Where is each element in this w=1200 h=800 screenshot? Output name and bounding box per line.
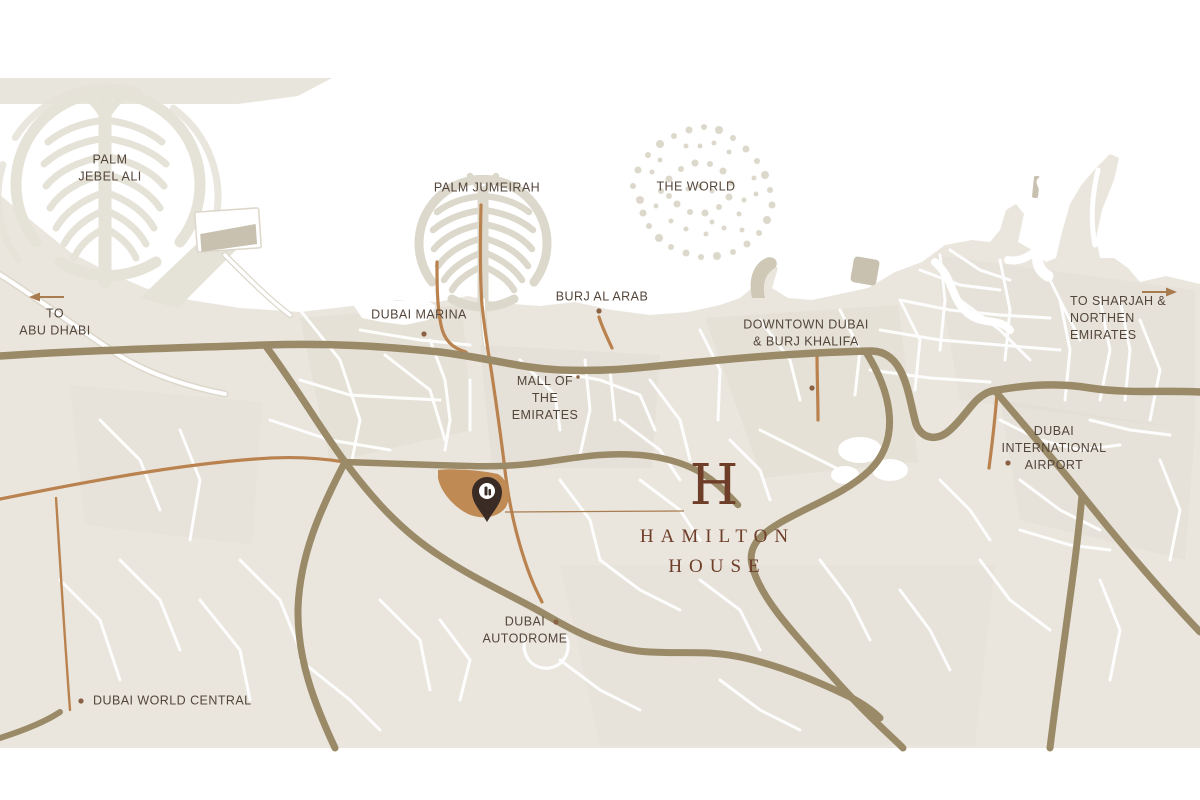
label-dubai-autodrome: DUBAI AUTODROME (482, 613, 567, 647)
world-central-dot (78, 698, 83, 703)
coastal-block (850, 256, 880, 286)
label-downtown-dubai: DOWNTOWN DUBAI & BURJ KHALIFA (743, 316, 869, 350)
map-canvas: PALM JEBEL ALI TO ABU DHABI PALM JUMEIRA… (0, 0, 1200, 800)
label-to-sharjah: TO SHARJAH & NORTHEN EMIRATES (1070, 293, 1200, 343)
label-dubai-world-central: DUBAI WORLD CENTRAL (93, 693, 252, 710)
burj-al-arab-dot (596, 308, 601, 313)
label-burj-al-arab: BURJ AL ARAB (556, 289, 648, 306)
port-basin (195, 208, 262, 252)
hamilton-house-name-line2: HOUSE (633, 557, 795, 576)
label-palm-jebel-ali: PALM JEBEL ALI (78, 151, 141, 185)
hamilton-house-monogram: H (633, 458, 795, 514)
map-artwork (0, 0, 1200, 800)
label-dubai-marina: DUBAI MARINA (371, 307, 467, 324)
label-to-abu-dhabi: TO ABU DHABI (19, 305, 90, 339)
downtown-dot (809, 385, 814, 390)
hamilton-house-logo: H HAMILTON HOUSE (633, 458, 795, 576)
label-the-world: THE WORLD (656, 179, 735, 196)
label-dubai-international-airport: DUBAI INTERNATIONAL AIRPORT (1002, 423, 1107, 473)
label-palm-jumeirah: PALM JUMEIRAH (434, 180, 540, 197)
label-mall-of-the-emirates: MALL OF THE EMIRATES (512, 373, 579, 423)
dubai-marina-dot (421, 331, 426, 336)
hamilton-house-name-line1: HAMILTON (633, 527, 795, 546)
